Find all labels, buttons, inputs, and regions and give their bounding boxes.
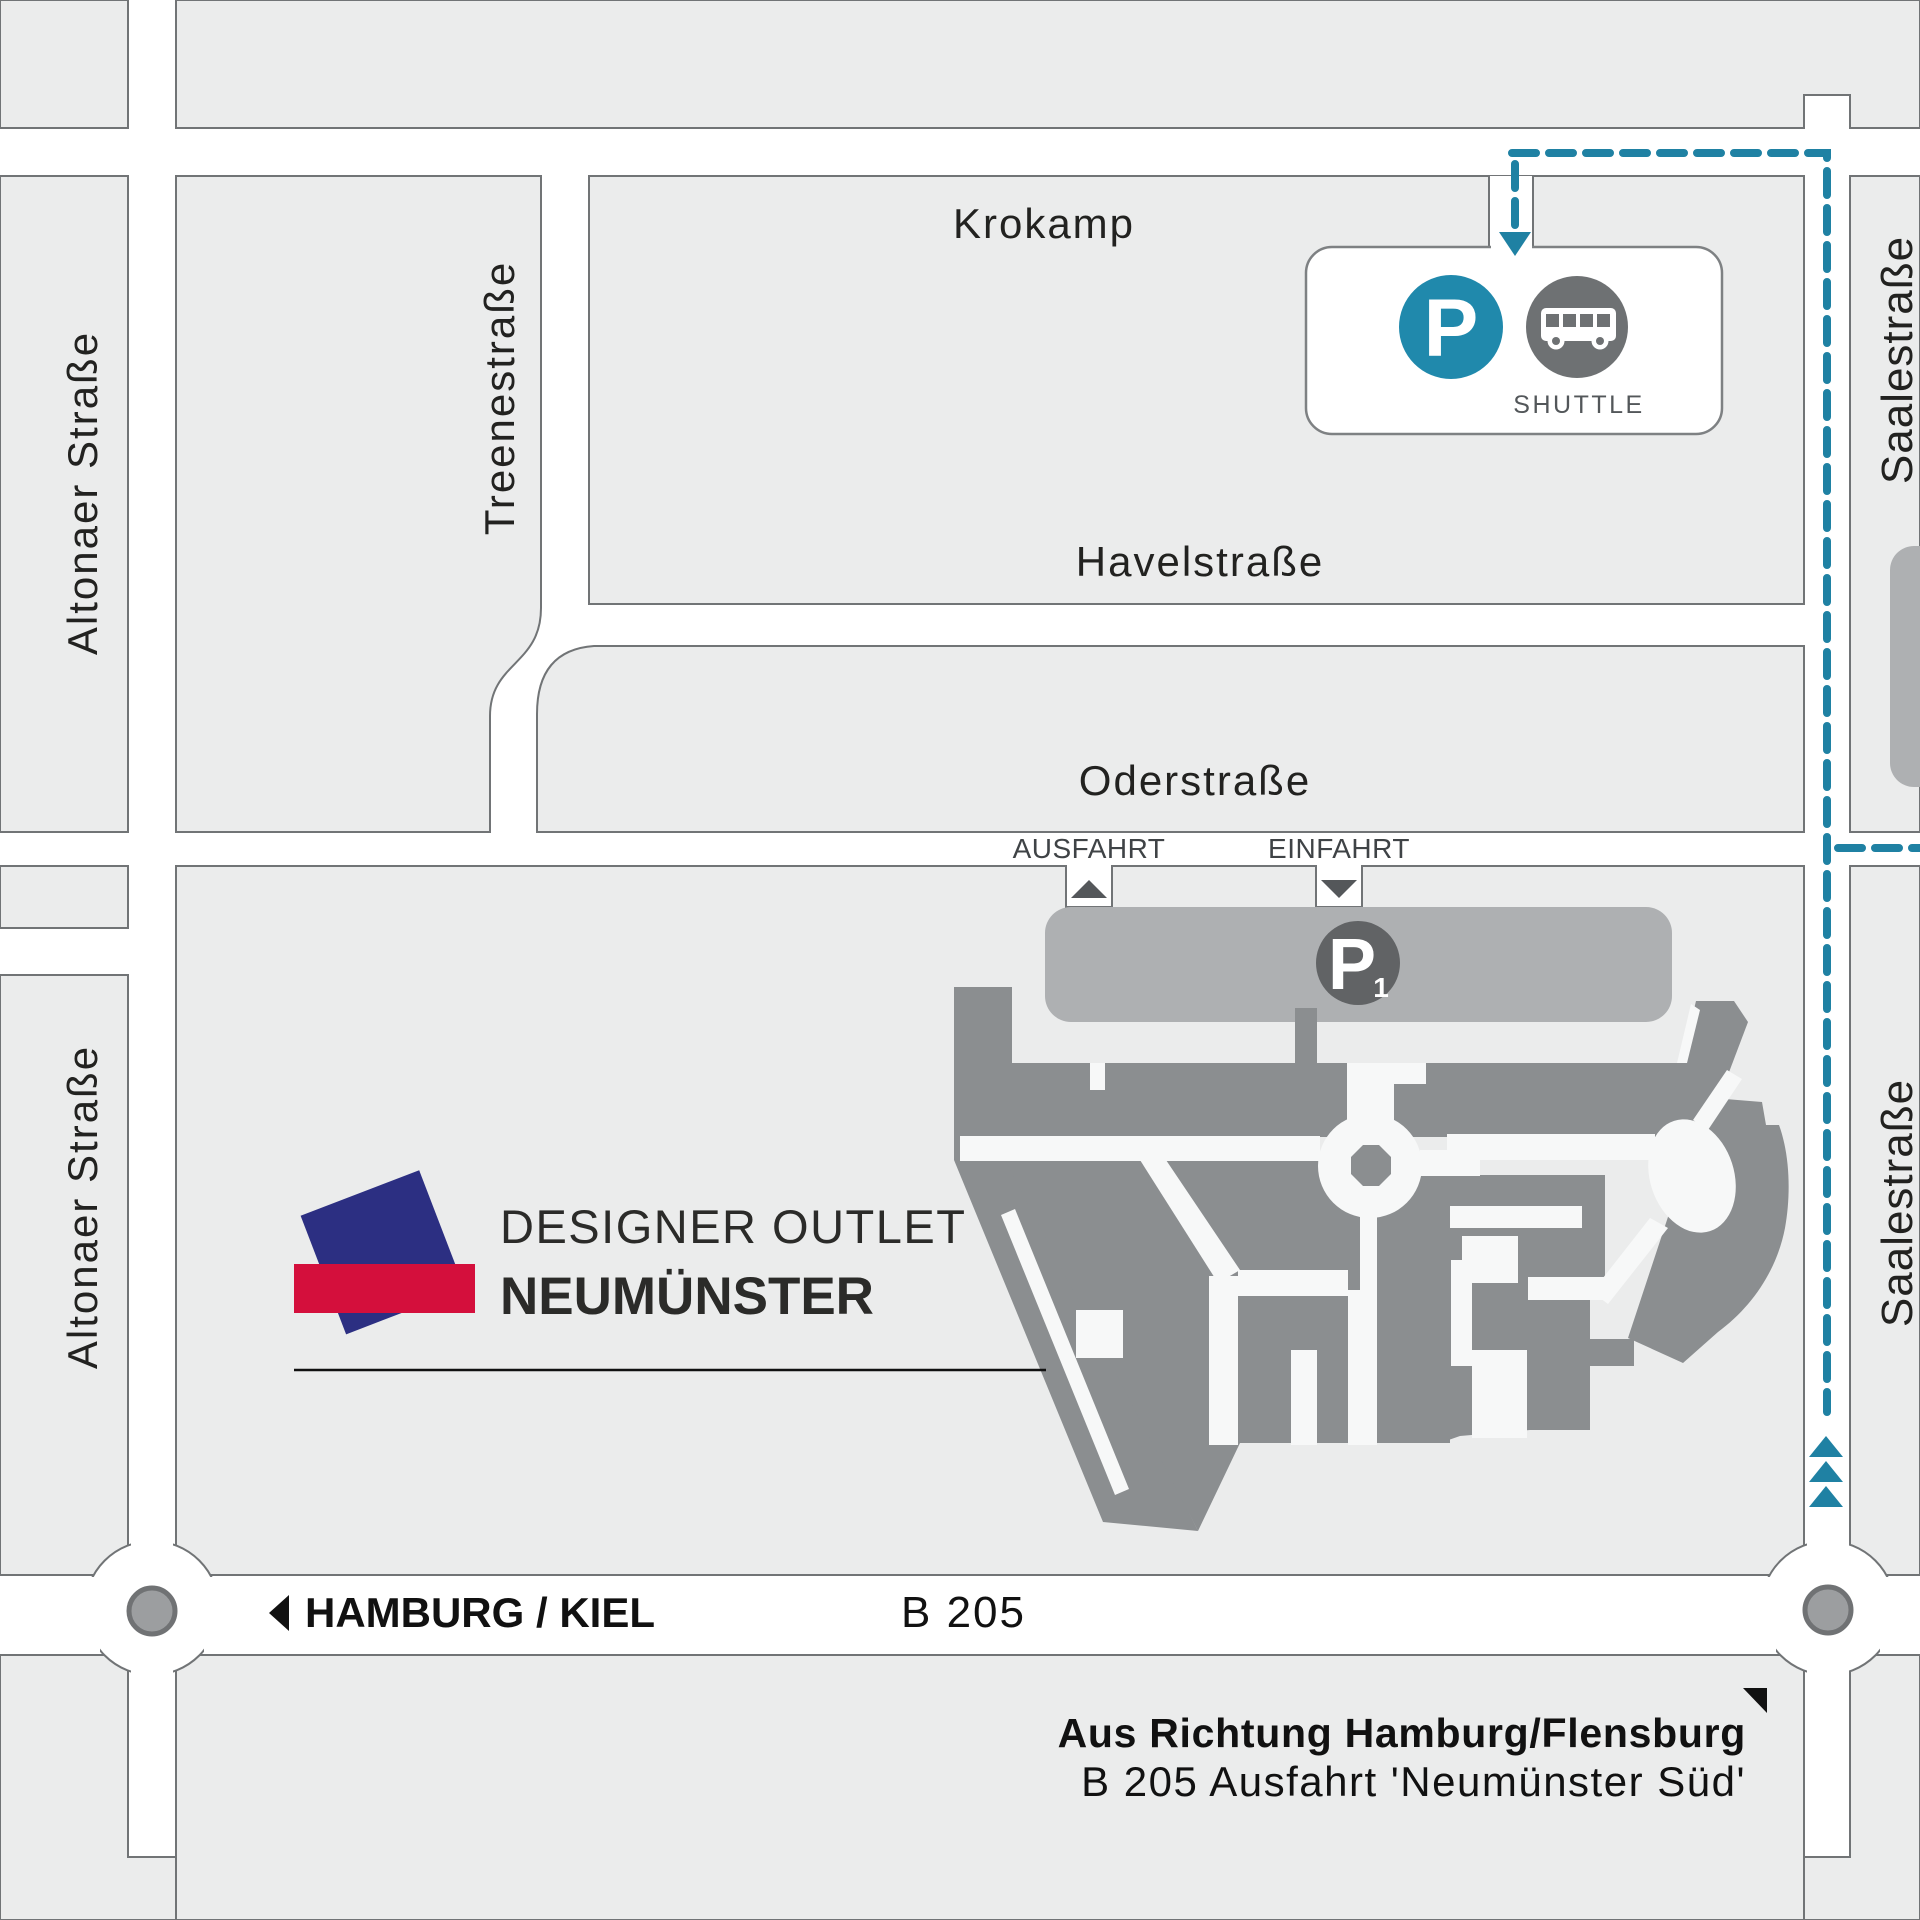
svg-text:Oderstraße: Oderstraße — [1079, 757, 1311, 804]
svg-text:Krokamp: Krokamp — [953, 200, 1135, 247]
svg-text:Saalestraße: Saalestraße — [1873, 236, 1920, 484]
svg-text:AUSFAHRT: AUSFAHRT — [1013, 833, 1166, 864]
svg-text:1: 1 — [1373, 972, 1389, 1003]
svg-text:P: P — [1424, 283, 1479, 374]
svg-text:Treenestraße: Treenestraße — [476, 261, 523, 536]
svg-text:B 205: B 205 — [901, 1588, 1026, 1637]
svg-text:NEUMÜNSTER: NEUMÜNSTER — [500, 1267, 874, 1326]
svg-text:SHUTTLE: SHUTTLE — [1513, 391, 1644, 419]
svg-text:DESIGNER OUTLET: DESIGNER OUTLET — [500, 1200, 966, 1253]
svg-text:P: P — [1328, 925, 1376, 1005]
svg-text:Aus Richtung Hamburg/Flensburg: Aus Richtung Hamburg/Flensburg — [1058, 1710, 1746, 1756]
svg-text:EINFAHRT: EINFAHRT — [1268, 833, 1410, 864]
svg-text:HAMBURG / KIEL: HAMBURG / KIEL — [305, 1589, 655, 1636]
svg-text:Havelstraße: Havelstraße — [1076, 538, 1324, 585]
svg-text:Saalestraße: Saalestraße — [1873, 1079, 1920, 1327]
svg-text:Altonaer Straße: Altonaer Straße — [59, 1045, 106, 1369]
svg-text:B 205 Ausfahrt 'Neumünster Süd: B 205 Ausfahrt 'Neumünster Süd' — [1081, 1758, 1746, 1805]
svg-text:Altonaer Straße: Altonaer Straße — [59, 331, 106, 655]
